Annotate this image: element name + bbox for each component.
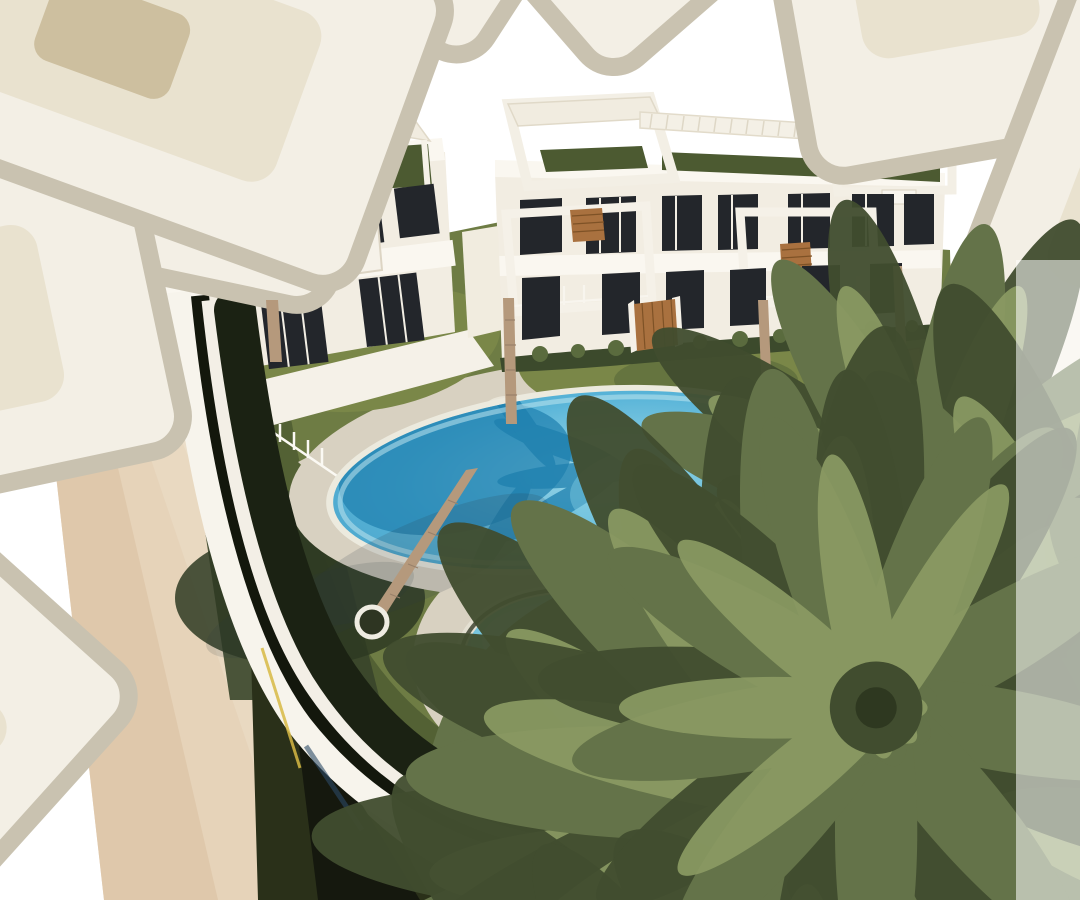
- boundary-wall: [462, 226, 502, 338]
- render-canvas: [0, 0, 1080, 900]
- scene-svg: [0, 0, 1080, 900]
- edge-fade: [1016, 260, 1080, 900]
